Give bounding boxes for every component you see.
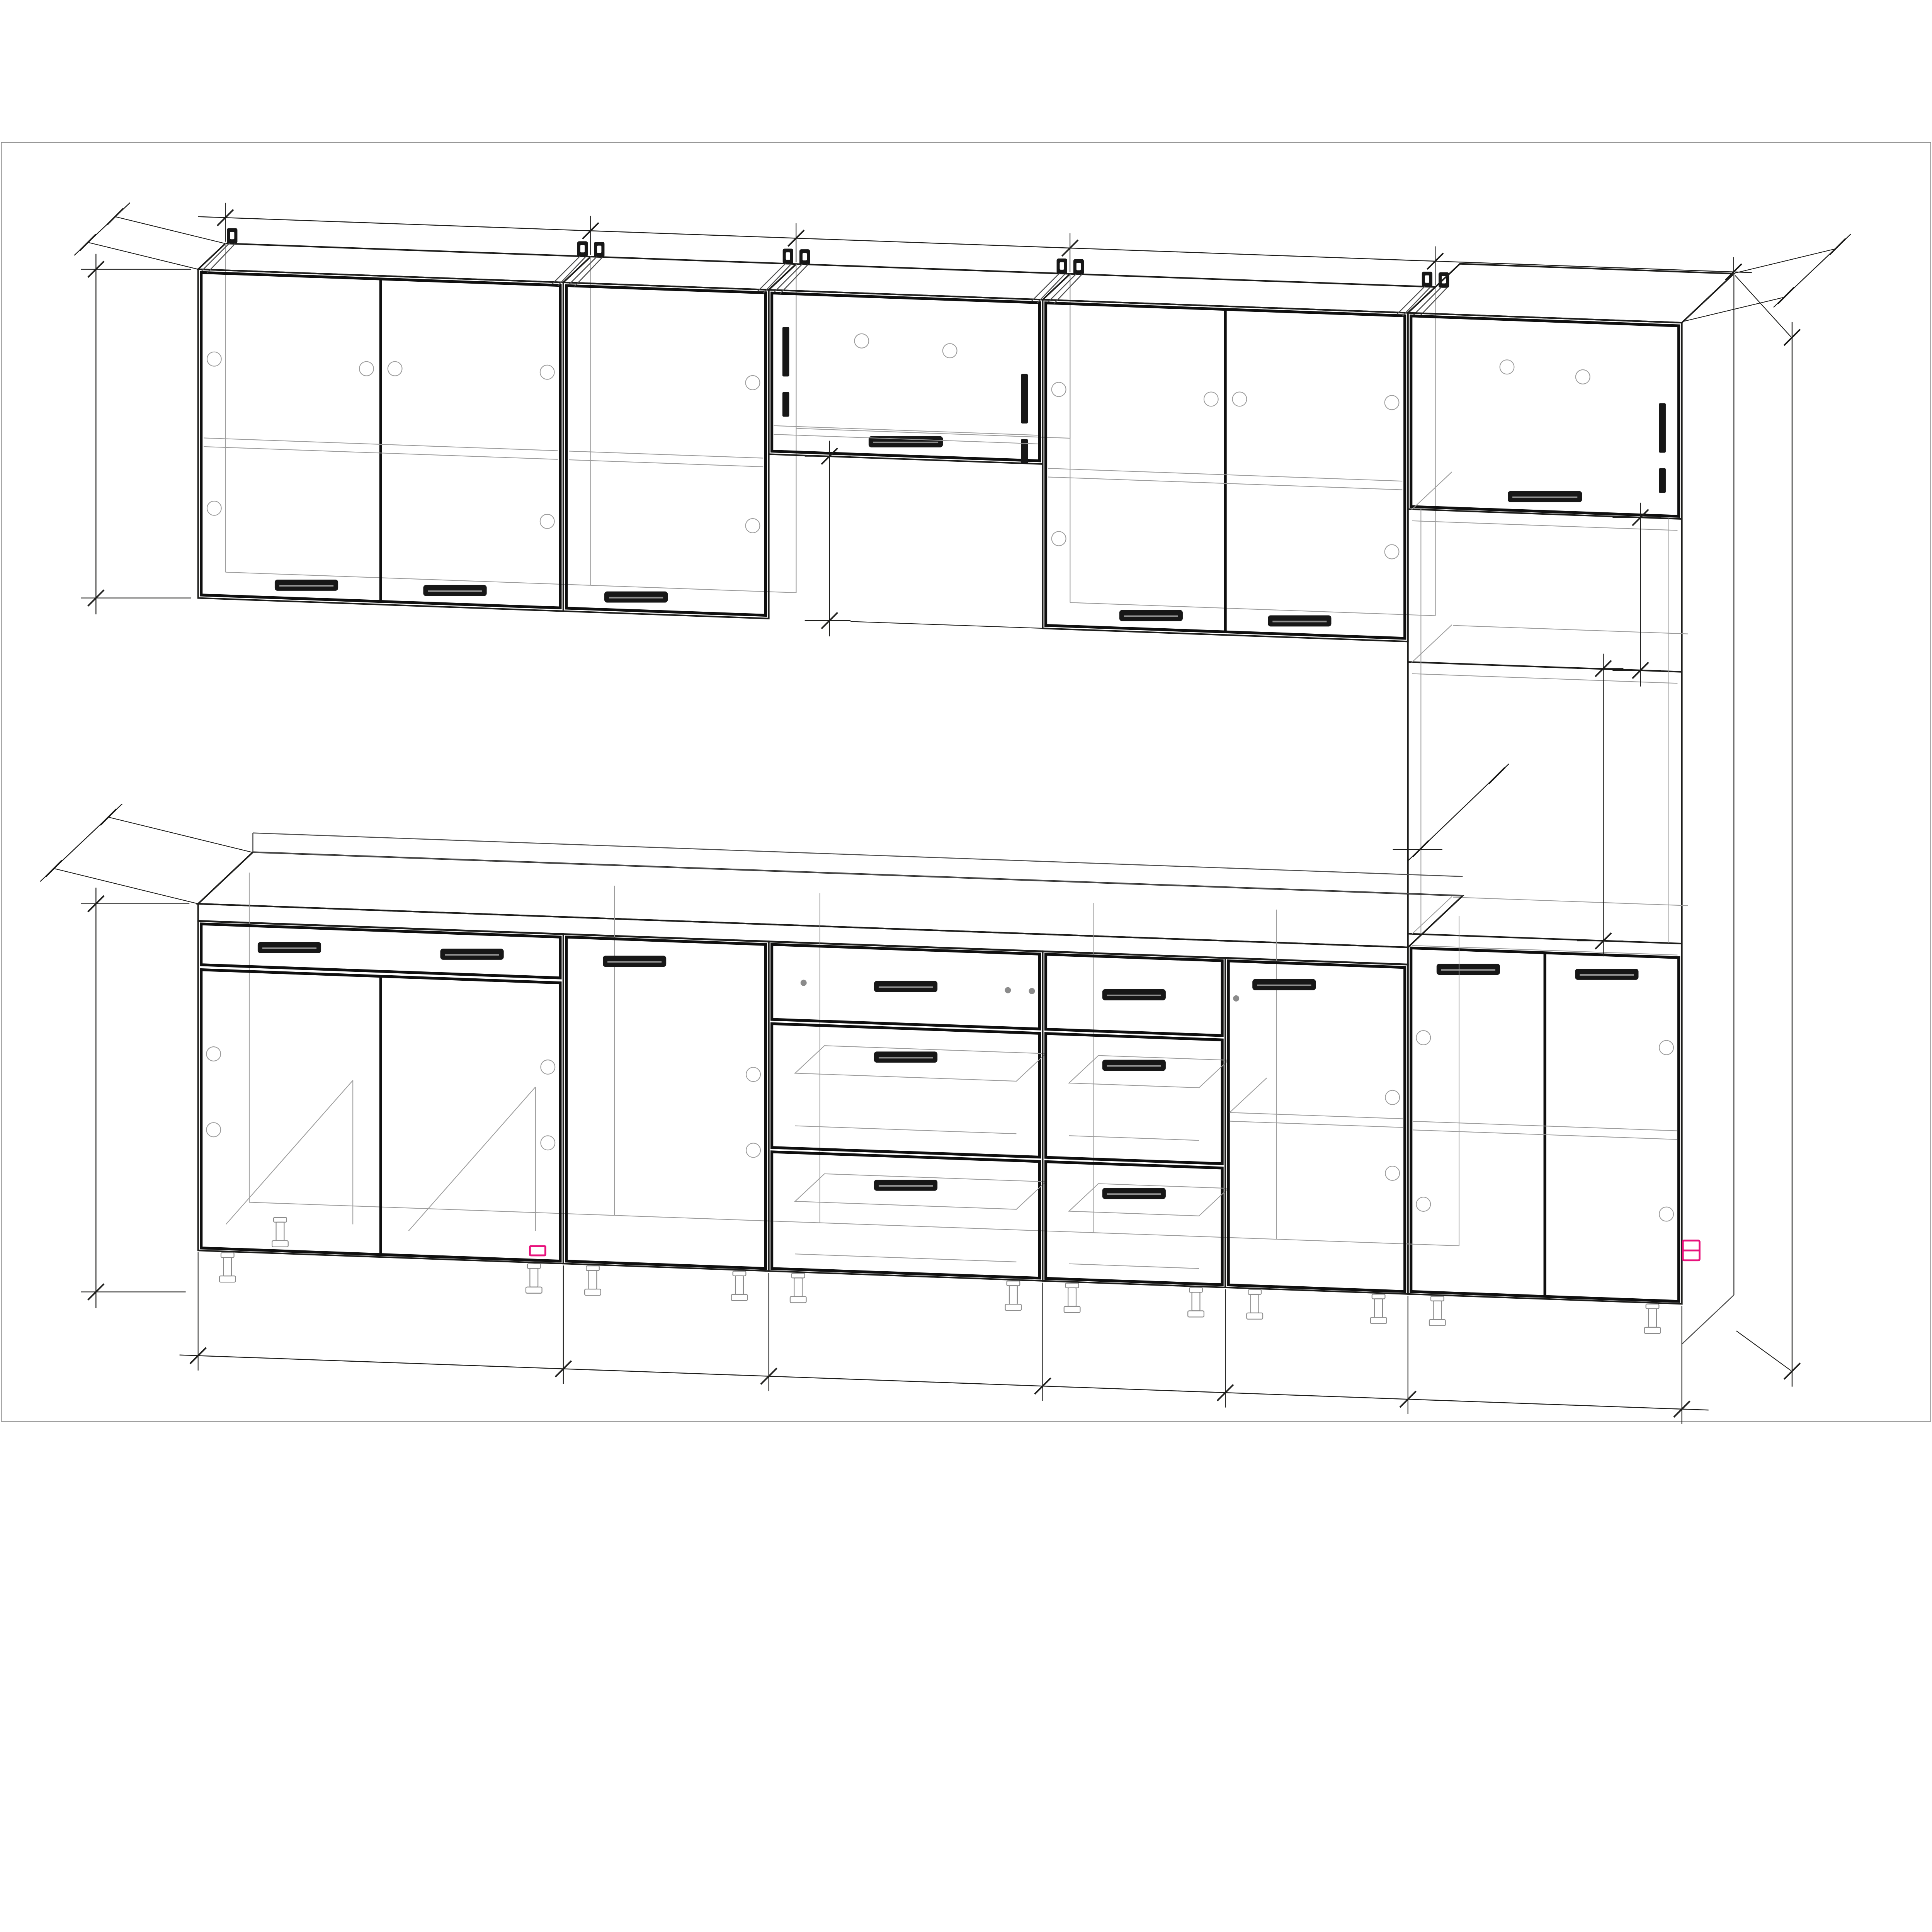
- wall-mount-bracket-notch: [786, 252, 790, 260]
- shelf-pin-mark: [943, 344, 957, 358]
- counter-front-edge: [198, 904, 1408, 965]
- adjustable-foot: [219, 1276, 236, 1282]
- wall-cabinet-1-door: [563, 282, 769, 619]
- drawing-line: [88, 242, 198, 269]
- adjustable-foot: [792, 1273, 805, 1278]
- hinge-mark: [359, 362, 374, 376]
- adjustable-foot: [1009, 1286, 1017, 1304]
- adjustable-foot: [1248, 1290, 1261, 1294]
- flip-stay-hardware: [1021, 439, 1028, 464]
- drawing-line: [1453, 897, 1688, 906]
- adjustable-foot: [1066, 1283, 1079, 1288]
- adjustable-foot: [1189, 1287, 1202, 1292]
- bracket-strap: [575, 257, 602, 286]
- adjustable-foot: [585, 1289, 601, 1295]
- top-dimension-line: [198, 217, 1752, 273]
- adjustable-foot: [1007, 1281, 1020, 1286]
- drawing-line: [1453, 626, 1688, 634]
- adjustable-foot: [526, 1287, 542, 1293]
- adjustable-foot: [731, 1294, 748, 1301]
- adjustable-foot: [221, 1253, 234, 1257]
- wall-mount-bracket-notch: [230, 232, 234, 239]
- drawing-line: [1230, 1112, 1403, 1119]
- adjustable-foot: [276, 1222, 284, 1241]
- hinge-mark: [1233, 392, 1247, 406]
- adjustable-foot: [274, 1218, 287, 1222]
- hinge-mark: [540, 365, 554, 379]
- wall-run: [198, 228, 1449, 641]
- base-1-door: [1225, 958, 1408, 1294]
- hinge-mark: [206, 1047, 221, 1061]
- drawing-line: [1412, 472, 1452, 510]
- flip-stay-hardware: [1659, 468, 1666, 493]
- adjustable-foot: [586, 1266, 599, 1270]
- drawing-line: [795, 1126, 1017, 1134]
- drawing-line: [115, 217, 225, 244]
- dimensions: [40, 203, 1851, 1424]
- adjustable-foot: [1646, 1304, 1659, 1309]
- hinge-mark: [1385, 1166, 1400, 1180]
- adjustable-foot: [223, 1257, 231, 1276]
- hinge-mark: [746, 376, 760, 390]
- drawing-line: [1412, 674, 1677, 684]
- drawing-line: [408, 1087, 535, 1231]
- hinge-mark: [1385, 1090, 1400, 1105]
- adjustable-foot: [1064, 1306, 1080, 1313]
- drawing-line: [108, 817, 252, 852]
- drawing-line: [1736, 1331, 1791, 1371]
- dimension-tick: [1489, 768, 1505, 784]
- hinge-mark: [1385, 545, 1399, 559]
- bottom-dimension-line: [180, 1355, 1709, 1410]
- base-run: [198, 872, 1459, 1323]
- adjustable-foot: [790, 1296, 806, 1303]
- adjustable-foot: [1645, 1327, 1661, 1333]
- adjustable-foot: [1431, 1296, 1444, 1301]
- drawer-box: [795, 1046, 1046, 1081]
- hinge-mark: [207, 352, 221, 366]
- kitchen-assembly-drawing: [0, 0, 1932, 1581]
- drawing-line: [1735, 249, 1836, 273]
- sheet-border: [1, 142, 1931, 1421]
- wall-cabinet-1-door-door: [566, 286, 766, 615]
- hinge-mark: [207, 501, 221, 515]
- hinge-mark: [1659, 1207, 1673, 1221]
- bracket-strap: [569, 257, 597, 284]
- cad-marker: [530, 1246, 545, 1255]
- drawing-line: [1094, 1233, 1277, 1239]
- screw-mark: [1029, 988, 1035, 994]
- drawing-line: [820, 1223, 1094, 1233]
- flip-stay-hardware: [1659, 403, 1666, 452]
- drawer-front: [772, 1152, 1040, 1278]
- wall-mount-bracket-notch: [1077, 263, 1081, 270]
- wall-mount-bracket-notch: [597, 246, 601, 253]
- hinge-mark: [1052, 532, 1066, 546]
- hinge-mark: [541, 1136, 555, 1150]
- drawing-line: [1230, 1078, 1267, 1113]
- drawer-front: [1046, 1034, 1223, 1164]
- drawer-front: [772, 1024, 1040, 1157]
- hinge-mark: [1052, 382, 1066, 396]
- base-1-door: [563, 934, 769, 1271]
- base-door: [566, 937, 766, 1269]
- drawing-line: [1412, 625, 1452, 663]
- drawing-line: [253, 833, 1463, 877]
- adjustable-foot: [1433, 1301, 1441, 1320]
- hinge-mark: [206, 1122, 221, 1137]
- adjustable-foot: [794, 1278, 802, 1296]
- wall-mount-bracket-notch: [1425, 276, 1429, 283]
- drawing-frame: [1, 142, 1931, 1421]
- drawer-box: [795, 1174, 1046, 1209]
- adjustable-foot: [1005, 1304, 1022, 1310]
- drawing-line: [774, 426, 1037, 435]
- shelf-pin-mark: [854, 334, 869, 348]
- drawing-line: [614, 1215, 820, 1223]
- bracket-strap: [1419, 288, 1447, 317]
- bracket-strap: [774, 264, 802, 292]
- tall-side-bottom-edge: [1682, 1295, 1734, 1344]
- hinge-mark: [746, 1067, 760, 1082]
- bracket-strap: [1048, 274, 1076, 302]
- flip-stay-hardware: [782, 327, 789, 376]
- flip-stay-hardware: [782, 392, 789, 417]
- shelf-pin-mark: [1576, 370, 1590, 384]
- drawing-line: [569, 460, 763, 467]
- adjustable-foot: [272, 1241, 288, 1247]
- adjustable-foot: [1251, 1294, 1259, 1313]
- adjustable-foot: [527, 1264, 541, 1269]
- drawing-line: [226, 1080, 353, 1224]
- drawing-line: [54, 869, 198, 904]
- base-3-drawer: [1043, 951, 1225, 1287]
- adjustable-foot: [1192, 1292, 1200, 1311]
- drawing-line: [1069, 1136, 1199, 1140]
- adjustable-foot: [1374, 1299, 1383, 1317]
- adjustable-foot: [1429, 1320, 1446, 1326]
- drawing-line: [850, 621, 1043, 628]
- hinge-mark: [1204, 392, 1218, 406]
- adjustable-foot: [1068, 1288, 1076, 1306]
- hinge-mark: [746, 519, 760, 533]
- screw-mark: [1005, 987, 1011, 993]
- adjustable-foot: [589, 1270, 597, 1289]
- hinge-mark: [540, 514, 554, 529]
- cad-drawing-page: [0, 0, 1932, 1581]
- hinge-mark: [746, 1143, 760, 1157]
- drawing-line: [795, 1254, 1017, 1262]
- drawing-line: [253, 852, 1463, 896]
- hinge-mark: [541, 1060, 555, 1074]
- wall-mount-bracket-notch: [1060, 262, 1064, 270]
- tall-shelf: [1408, 934, 1682, 944]
- flip-stay-hardware: [1021, 374, 1028, 423]
- bracket-strap: [780, 265, 808, 294]
- dimension-tick: [1830, 239, 1846, 255]
- wall-mount-bracket-notch: [580, 245, 585, 252]
- adjustable-foot: [1371, 1317, 1387, 1323]
- drawing-line: [1276, 1239, 1459, 1246]
- drawing-line: [1230, 1121, 1403, 1128]
- dimension-tick: [1778, 287, 1794, 304]
- hinge-mark: [1385, 395, 1399, 410]
- drawing-line: [1412, 896, 1452, 934]
- drawing-line: [1735, 276, 1791, 337]
- drawing-line: [1412, 521, 1677, 531]
- drawing-line: [1069, 1264, 1199, 1269]
- screw-mark: [801, 980, 807, 986]
- base-3-drawer: [769, 941, 1043, 1281]
- shelf-pin-mark: [1500, 360, 1514, 374]
- adjustable-foot: [1188, 1311, 1204, 1317]
- drawing-line: [569, 451, 763, 458]
- wall-mount-bracket-notch: [803, 253, 807, 260]
- countertop: [198, 833, 1463, 965]
- adjustable-foot: [733, 1271, 746, 1276]
- counter-top-face: [198, 852, 1463, 947]
- adjustable-foot: [735, 1276, 743, 1294]
- hinge-mark: [1416, 1197, 1430, 1211]
- tall-flip-door: [1411, 316, 1679, 517]
- bracket-strap: [1054, 275, 1082, 304]
- adjustable-foot: [1648, 1309, 1656, 1327]
- hinge-mark: [388, 362, 402, 376]
- tall-cabinet: [1408, 264, 1734, 1344]
- adjustable-foot: [1372, 1294, 1385, 1299]
- hinge-mark: [1416, 1031, 1430, 1045]
- adjustable-foot: [530, 1269, 538, 1287]
- screw-mark: [1233, 995, 1239, 1002]
- hinge-mark: [1659, 1041, 1673, 1055]
- adjustable-foot: [1247, 1313, 1263, 1319]
- bracket-strap: [1413, 287, 1441, 315]
